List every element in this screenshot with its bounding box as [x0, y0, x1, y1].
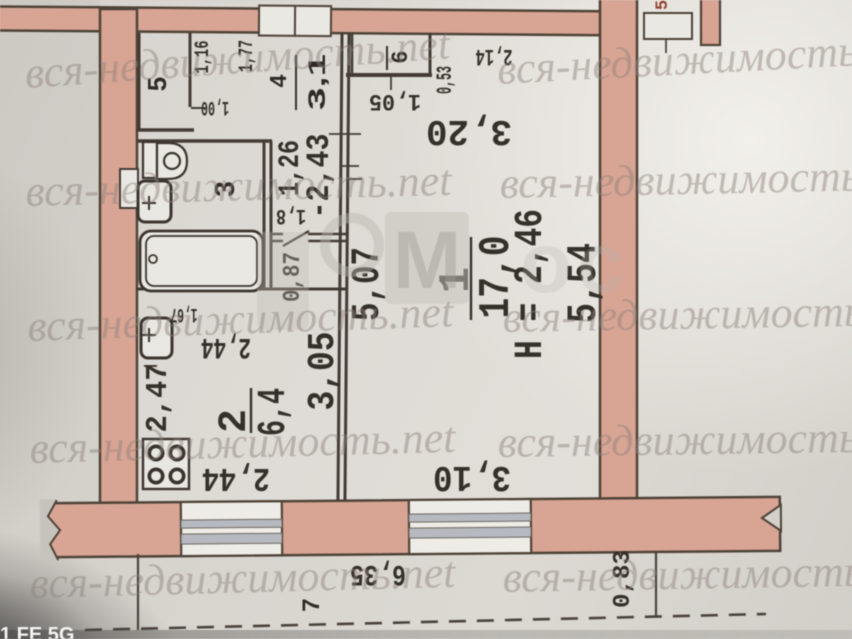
svg-text:вся-недвижимость.net: вся-недвижимость.net — [29, 548, 458, 608]
svg-text:3,20: 3,20 — [426, 110, 512, 151]
svg-text:1 FE 5G: 1 FE 5G — [0, 624, 74, 639]
svg-text:1,00: 1,00 — [201, 95, 229, 118]
svg-text:вся-недвижимость.net: вся-недвижимость.net — [499, 150, 852, 208]
svg-text:вся-недвижимость.net: вся-недвижимость.net — [502, 546, 852, 602]
svg-text:вся-недвижимость.net: вся-недвижимость.net — [497, 412, 852, 467]
svg-text:5: 5 — [652, 0, 671, 9]
svg-text:3,05: 3,05 — [302, 332, 345, 411]
svg-text:1,05: 1,05 — [369, 88, 421, 114]
svg-text:0,53: 0,53 — [433, 66, 458, 94]
svg-text:вся-недвижимость.net: вся-недвижимость.net — [502, 286, 852, 342]
